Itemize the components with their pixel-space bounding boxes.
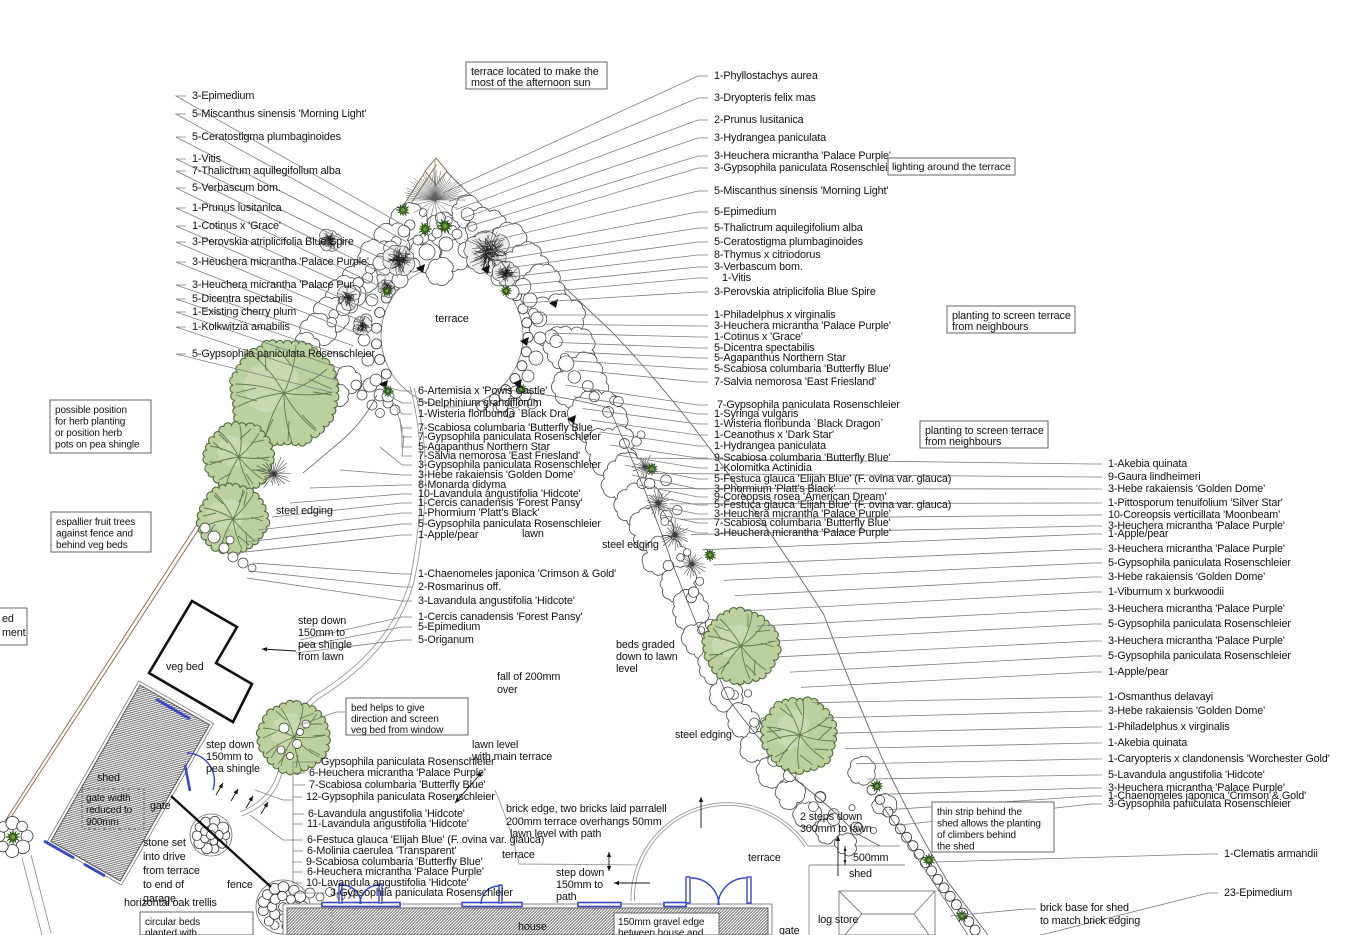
svg-text:ed: ed — [2, 613, 14, 625]
svg-text:1-Chaenomeles japonica 'Crimso: 1-Chaenomeles japonica 'Crimson & Gold' — [418, 568, 616, 580]
svg-text:150mm to: 150mm to — [298, 627, 345, 639]
svg-text:garage: garage — [143, 893, 176, 905]
svg-text:3-Gypsophila paniculata Rosens: 3-Gypsophila paniculata Rosenschleier — [330, 887, 513, 899]
svg-text:900mm: 900mm — [86, 817, 119, 828]
svg-text:direction and screen: direction and screen — [351, 714, 439, 725]
svg-text:5-Gypsophila paniculata Rosens: 5-Gypsophila paniculata Rosenschleier — [192, 348, 375, 360]
svg-text:5-Thalictrum aquilegifolium al: 5-Thalictrum aquilegifolium alba — [714, 222, 863, 234]
svg-text:3-Heuchera micrantha 'Palace P: 3-Heuchera micrantha 'Palace Purple' — [192, 256, 369, 268]
svg-text:house: house — [518, 921, 547, 933]
svg-text:1-Apple/pear: 1-Apple/pear — [418, 529, 479, 541]
svg-text:gate: gate — [150, 800, 171, 812]
svg-text:3-Gypsophila paniculata Rosens: 3-Gypsophila paniculata Rosenschleier — [1108, 798, 1291, 810]
svg-text:terrace: terrace — [502, 849, 535, 861]
svg-text:the shed: the shed — [937, 842, 974, 853]
svg-text:terrace: terrace — [748, 852, 781, 864]
svg-text:1-Philadelphus x virginalis: 1-Philadelphus x virginalis — [1108, 721, 1230, 733]
svg-text:most of the afternoon sun: most of the afternoon sun — [471, 77, 591, 89]
svg-text:steel edging: steel edging — [276, 505, 333, 517]
svg-text:5-Ceratostigma plumbaginoides: 5-Ceratostigma plumbaginoides — [714, 236, 864, 248]
svg-text:3-Hebe rakaiensis 'Golden Dome: 3-Hebe rakaiensis 'Golden Dome' — [1108, 483, 1265, 495]
svg-text:fence: fence — [227, 879, 253, 891]
svg-text:to match brick edging: to match brick edging — [1040, 915, 1140, 927]
svg-text:5-Gypsophila paniculata Rosens: 5-Gypsophila paniculata Rosenschleier — [1108, 618, 1291, 630]
svg-text:300mm to lawn: 300mm to lawn — [800, 823, 872, 835]
svg-text:2-Rosmarinus off.: 2-Rosmarinus off. — [418, 581, 501, 593]
svg-text:7-Salvia nemorosa 'East Friesl: 7-Salvia nemorosa 'East Friesland' — [714, 376, 876, 388]
svg-text:between house and: between house and — [618, 928, 703, 935]
svg-text:3-Heuchera micrantha 'Palace P: 3-Heuchera micrantha 'Palace Purple' — [714, 527, 891, 539]
svg-text:shed allows the planting: shed allows the planting — [937, 819, 1041, 830]
svg-text:over: over — [497, 684, 518, 696]
svg-text:1-Cotinus x 'Grace': 1-Cotinus x 'Grace' — [192, 220, 281, 232]
svg-text:1-Apple/pear: 1-Apple/pear — [1108, 666, 1169, 678]
svg-text:steel edging: steel edging — [675, 729, 732, 741]
svg-text:brick edge, two bricks laid pa: brick edge, two bricks laid parralell — [506, 803, 667, 815]
svg-text:3-Lavandula angustifolia 'Hidc: 3-Lavandula angustifolia 'Hidcote' — [418, 595, 575, 607]
svg-text:3-Gypsophila paniculata Rosens: 3-Gypsophila paniculata Rosenschleier — [714, 162, 897, 174]
svg-text:6-Artemisia x 'Powis Castle': 6-Artemisia x 'Powis Castle' — [418, 385, 547, 397]
svg-text:gate width: gate width — [86, 793, 130, 804]
svg-text:3-Hydrangea paniculata: 3-Hydrangea paniculata — [714, 132, 826, 144]
svg-text:1-Apple/pear: 1-Apple/pear — [1108, 528, 1169, 540]
svg-text:7-Scabiosa columbaria 'Butterf: 7-Scabiosa columbaria 'Butterfly Blue' — [309, 779, 486, 791]
svg-text:from neighbours: from neighbours — [925, 436, 1002, 448]
svg-text:2 steps down: 2 steps down — [800, 811, 862, 823]
svg-text:150mm gravel edge: 150mm gravel edge — [618, 917, 705, 928]
svg-text:5-Ceratostigma plumbaginoides: 5-Ceratostigma plumbaginoides — [192, 131, 342, 143]
svg-text:gate: gate — [779, 925, 800, 935]
svg-text:1-Pittosporum tenuifolium 'Sil: 1-Pittosporum tenuifolium 'Silver Star' — [1108, 497, 1283, 509]
svg-text:2-Prunus lusitanica: 2-Prunus lusitanica — [714, 114, 804, 126]
svg-text:lighting around the terrace: lighting around the terrace — [892, 161, 1011, 173]
svg-text:reduced to: reduced to — [86, 805, 133, 816]
svg-text:of climbers behind: of climbers behind — [937, 830, 1016, 841]
svg-text:3-Perovskia atriplicifolia Blu: 3-Perovskia atriplicifolia Blue Spire — [192, 236, 354, 248]
svg-text:against fence and: against fence and — [56, 529, 133, 540]
svg-text:1-Akebia quinata: 1-Akebia quinata — [1108, 737, 1187, 749]
svg-text:5-Gypsophila paniculata Rosens: 5-Gypsophila paniculata Rosenschleier — [1108, 650, 1291, 662]
svg-text:7-Thalictrum aquilegifolium al: 7-Thalictrum aquilegifolium alba — [192, 165, 341, 177]
svg-text:thin strip behind the: thin strip behind the — [937, 807, 1022, 818]
svg-text:6-Heuchera micrantha 'Palace P: 6-Heuchera micrantha 'Palace Purple' — [309, 767, 486, 779]
svg-text:9-Gaura lindheimeri: 9-Gaura lindheimeri — [1108, 471, 1201, 483]
svg-text:200mm terrace overhangs 50mm: 200mm terrace overhangs 50mm — [506, 816, 662, 828]
svg-text:lawn level with path: lawn level with path — [510, 828, 601, 840]
svg-text:1-Vitis: 1-Vitis — [722, 272, 752, 284]
svg-text:1-Phyllostachys aurea: 1-Phyllostachys aurea — [714, 70, 818, 82]
svg-text:veg bed from window: veg bed from window — [351, 725, 444, 736]
svg-text:circular beds: circular beds — [145, 917, 200, 928]
svg-text:5-Miscanthus sinensis 'Morning: 5-Miscanthus sinensis 'Morning Light' — [192, 108, 366, 120]
svg-text:level: level — [616, 663, 638, 675]
svg-text:espallier fruit trees: espallier fruit trees — [56, 517, 135, 528]
svg-text:with main terrace: with main terrace — [471, 751, 552, 763]
svg-text:3-Dryopteris felix mas: 3-Dryopteris felix mas — [714, 92, 816, 104]
svg-text:3-Epimedium: 3-Epimedium — [192, 90, 254, 102]
svg-text:possible position: possible position — [55, 405, 127, 416]
svg-text:1-Hydrangea paniculata: 1-Hydrangea paniculata — [714, 440, 826, 452]
svg-text:stone set: stone set — [143, 837, 186, 849]
svg-text:1-Prunus lusitanica: 1-Prunus lusitanica — [192, 202, 282, 214]
svg-text:veg bed: veg bed — [166, 661, 204, 673]
svg-text:into drive: into drive — [143, 851, 186, 863]
svg-text:1-Clematis armandii: 1-Clematis armandii — [1224, 848, 1318, 860]
svg-text:3-Hebe rakaiensis 'Golden Dome: 3-Hebe rakaiensis 'Golden Dome' — [1108, 705, 1265, 717]
svg-text:step down: step down — [556, 867, 604, 879]
svg-text:for herb planting: for herb planting — [55, 417, 125, 428]
svg-text:shed: shed — [849, 868, 872, 880]
svg-text:to end of: to end of — [143, 879, 185, 891]
svg-text:5-Miscanthus sinensis 'Morning: 5-Miscanthus sinensis 'Morning Light' — [714, 185, 888, 197]
svg-text:500mm: 500mm — [853, 852, 889, 864]
svg-text:23-Epimedium: 23-Epimedium — [1224, 887, 1292, 899]
svg-text:bed helps to give: bed helps to give — [351, 703, 425, 714]
svg-text:1-Caryopteris x clandonensis ': 1-Caryopteris x clandonensis 'Worchester… — [1108, 753, 1330, 765]
svg-text:3-Heuchera micrantha 'Palace P: 3-Heuchera micrantha 'Palace Purple' — [714, 150, 891, 162]
svg-text:pots on pea shingle: pots on pea shingle — [55, 440, 140, 451]
svg-text:step down: step down — [298, 615, 346, 627]
svg-text:steel edging: steel edging — [602, 539, 659, 551]
svg-text:brick base for shed: brick base for shed — [1040, 902, 1129, 914]
svg-text:1-Kolkwitzia amabilis: 1-Kolkwitzia amabilis — [192, 321, 290, 333]
svg-text:3-Hebe rakaiensis 'Golden Dome: 3-Hebe rakaiensis 'Golden Dome' — [1108, 571, 1265, 583]
svg-text:behind veg beds: behind veg beds — [56, 540, 128, 551]
svg-text:1-Viburnum x burkwoodii: 1-Viburnum x burkwoodii — [1108, 586, 1224, 598]
svg-text:pea shingle: pea shingle — [206, 763, 260, 775]
svg-text:1-Vitis: 1-Vitis — [192, 153, 222, 165]
svg-text:5-Verbascum bom.: 5-Verbascum bom. — [192, 182, 281, 194]
svg-text:150mm to: 150mm to — [206, 751, 253, 763]
svg-text:from neighbours: from neighbours — [952, 321, 1029, 333]
svg-text:1-Wisteria floribunda `Black D: 1-Wisteria floribunda `Black Dra — [418, 408, 567, 420]
svg-text:1-Osmanthus delavayi: 1-Osmanthus delavayi — [1108, 691, 1213, 703]
svg-text:5-Origanum: 5-Origanum — [418, 634, 474, 646]
svg-text:5-Epimedium: 5-Epimedium — [714, 206, 776, 218]
svg-text:lawn: lawn — [522, 528, 544, 540]
svg-text:shed: shed — [97, 772, 120, 784]
svg-text:1-Existing cherry plum: 1-Existing cherry plum — [192, 306, 296, 318]
svg-text:12-Gypsophila paniculata Rosen: 12-Gypsophila paniculata Rosenschleier — [306, 791, 495, 803]
svg-text:from lawn: from lawn — [298, 651, 344, 663]
svg-text:ment: ment — [2, 627, 26, 639]
svg-text:3-Heuchera micrantha 'Palace P: 3-Heuchera micrantha 'Palace Purple' — [1108, 603, 1285, 615]
svg-text:terrace: terrace — [435, 313, 468, 325]
svg-text:or position herb: or position herb — [55, 428, 123, 439]
svg-text:3-Perovskia atriplicifolia Blu: 3-Perovskia atriplicifolia Blue Spire — [714, 286, 876, 298]
svg-text:fall of 200mm: fall of 200mm — [497, 671, 560, 683]
svg-text:path: path — [556, 891, 577, 903]
svg-text:5-Gypsophila paniculata Rosens: 5-Gypsophila paniculata Rosenschleier — [1108, 557, 1291, 569]
svg-text:step down: step down — [206, 739, 254, 751]
svg-text:beds graded: beds graded — [616, 639, 675, 651]
svg-text:3-Heuchera micrantha 'Palace P: 3-Heuchera micrantha 'Palace Purple' — [1108, 635, 1285, 647]
svg-text:5-Scabiosa columbaria 'Butterf: 5-Scabiosa columbaria 'Butterfly Blue' — [714, 363, 891, 375]
svg-text:3-Heuchera micrantha 'Palace P: 3-Heuchera micrantha 'Palace Pur — [192, 279, 353, 291]
svg-text:pea shingle: pea shingle — [298, 639, 352, 651]
svg-text:150mm to: 150mm to — [556, 879, 603, 891]
svg-text:5-Lavandula angustifolia 'Hidc: 5-Lavandula angustifolia 'Hidcote' — [1108, 769, 1265, 781]
svg-text:5-Epimedium: 5-Epimedium — [418, 621, 480, 633]
svg-text:down to lawn: down to lawn — [616, 651, 678, 663]
svg-text:log store: log store — [818, 914, 858, 926]
svg-text:planted with: planted with — [145, 928, 197, 935]
svg-text:1-Akebia quinata: 1-Akebia quinata — [1108, 458, 1187, 470]
svg-text:11-Lavandula angustifolia 'Hid: 11-Lavandula angustifolia 'Hidcote' — [307, 818, 469, 830]
svg-text:5-Dicentra spectabilis: 5-Dicentra spectabilis — [192, 293, 293, 305]
svg-text:lawn level: lawn level — [472, 739, 518, 751]
svg-text:from terrace: from terrace — [143, 865, 200, 877]
svg-text:3-Heuchera micrantha 'Palace P: 3-Heuchera micrantha 'Palace Purple' — [1108, 543, 1285, 555]
svg-text:8-Thymus x citriodorus: 8-Thymus x citriodorus — [714, 249, 821, 261]
